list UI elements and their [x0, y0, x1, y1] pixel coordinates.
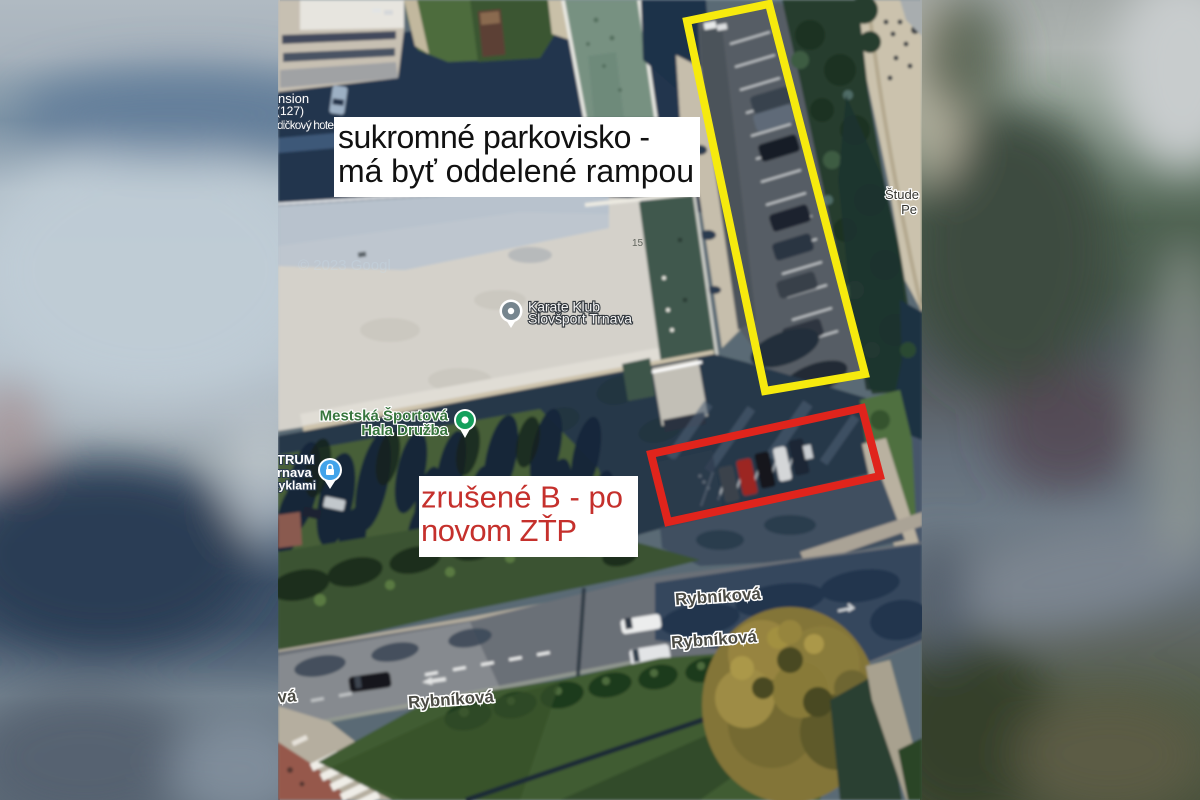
svg-text:Slovšport Trnava: Slovšport Trnava: [528, 311, 632, 327]
svg-text:sukromné parkovisko -: sukromné parkovisko -: [338, 119, 650, 155]
svg-text:dičkový hote: dičkový hote: [277, 118, 334, 132]
svg-text:Pe: Pe: [901, 202, 917, 217]
svg-text:novom ZŤP: novom ZŤP: [421, 513, 577, 548]
svg-text:Štude: Štude: [885, 187, 919, 202]
svg-text:vá: vá: [277, 686, 298, 706]
svg-text:15: 15: [632, 238, 644, 249]
svg-text:má byť oddelené rampou: má byť oddelené rampou: [338, 153, 694, 189]
svg-text:zrušené B - po: zrušené B - po: [421, 480, 623, 515]
svg-text:© 2023 Googl: © 2023 Googl: [298, 257, 391, 274]
svg-text:cyklami: cyklami: [272, 479, 316, 493]
svg-text:Hala Družba: Hala Družba: [361, 422, 448, 439]
svg-text:(127): (127): [276, 104, 304, 118]
